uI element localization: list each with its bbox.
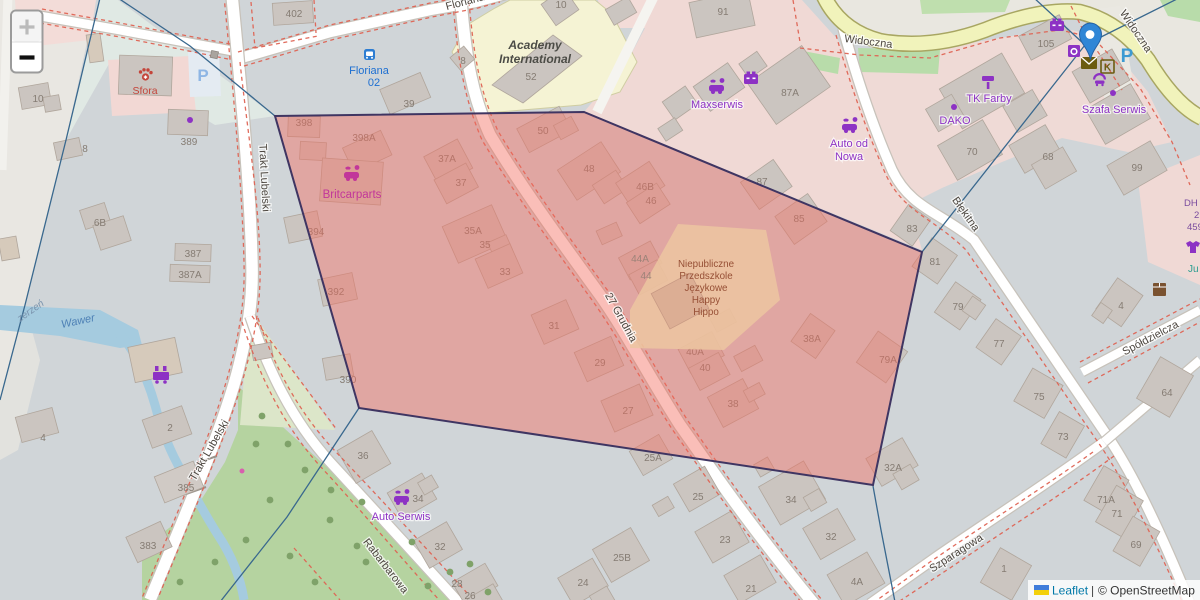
- svg-text:69: 69: [1130, 540, 1142, 551]
- svg-text:Auto Serwis: Auto Serwis: [372, 511, 431, 523]
- svg-text:Maxserwis: Maxserwis: [691, 99, 743, 111]
- svg-text:4: 4: [40, 433, 46, 444]
- svg-text:Floriana: Floriana: [349, 65, 390, 77]
- svg-text:DAKO: DAKO: [939, 115, 971, 127]
- svg-text:Leaflet: Leaflet: [1052, 584, 1089, 598]
- svg-text:34: 34: [412, 494, 424, 505]
- svg-text:P: P: [197, 66, 208, 85]
- svg-text:25: 25: [692, 492, 704, 503]
- svg-text:91: 91: [717, 7, 729, 18]
- svg-text:68: 68: [1042, 152, 1054, 163]
- svg-text:71A: 71A: [1097, 495, 1115, 506]
- svg-text:83: 83: [906, 224, 918, 235]
- svg-text:Academy: Academy: [507, 38, 563, 52]
- svg-text:387: 387: [185, 249, 202, 260]
- svg-text:389: 389: [181, 137, 198, 148]
- svg-text:Szafa Serwis: Szafa Serwis: [1082, 104, 1147, 116]
- svg-text:Sfora: Sfora: [132, 85, 157, 97]
- svg-text:Auto od: Auto od: [830, 138, 868, 150]
- svg-text:36: 36: [357, 451, 369, 462]
- svg-text:25A: 25A: [644, 453, 662, 464]
- svg-text:|: |: [1091, 584, 1094, 598]
- svg-text:Britcarparts: Britcarparts: [323, 189, 382, 201]
- svg-text:26: 26: [464, 591, 476, 600]
- svg-text:8: 8: [460, 56, 466, 67]
- svg-text:Hippo: Hippo: [693, 307, 719, 318]
- svg-text:10: 10: [32, 94, 44, 105]
- svg-text:DH: DH: [1184, 198, 1198, 209]
- svg-text:81: 81: [929, 257, 941, 268]
- svg-text:23: 23: [719, 535, 731, 546]
- svg-text:387A: 387A: [178, 270, 202, 281]
- svg-text:10: 10: [555, 0, 567, 11]
- svg-text:52: 52: [525, 72, 537, 83]
- svg-text:28: 28: [451, 579, 463, 590]
- svg-text:1: 1: [1001, 564, 1007, 575]
- svg-text:402: 402: [286, 9, 303, 20]
- svg-text:Przedszkole: Przedszkole: [679, 271, 733, 282]
- svg-text:4: 4: [1118, 301, 1124, 312]
- svg-text:Językowe: Językowe: [684, 283, 728, 294]
- svg-text:K: K: [1104, 63, 1112, 74]
- svg-text:459: 459: [1187, 222, 1200, 233]
- svg-text:25B: 25B: [613, 553, 631, 564]
- svg-text:Niepubliczne: Niepubliczne: [678, 259, 735, 270]
- svg-text:79: 79: [952, 302, 964, 313]
- svg-text:32: 32: [825, 532, 837, 543]
- svg-text:Nowa: Nowa: [835, 151, 864, 163]
- svg-text:8: 8: [82, 144, 88, 155]
- svg-text:99: 99: [1131, 163, 1143, 174]
- svg-text:32: 32: [434, 542, 446, 553]
- svg-text:32A: 32A: [884, 463, 902, 474]
- svg-text:Ju: Ju: [1188, 264, 1199, 275]
- svg-text:77: 77: [993, 339, 1005, 350]
- svg-text:International: International: [499, 52, 572, 66]
- svg-text:34: 34: [785, 495, 797, 506]
- svg-text:Happy: Happy: [692, 295, 720, 306]
- svg-text:385: 385: [178, 483, 195, 494]
- svg-text:70: 70: [966, 147, 978, 158]
- svg-text:73: 73: [1057, 432, 1069, 443]
- svg-text:6B: 6B: [94, 218, 107, 229]
- svg-text:39: 39: [403, 99, 415, 110]
- svg-text:64: 64: [1161, 388, 1173, 399]
- svg-text:© OpenStreetMap: © OpenStreetMap: [1098, 584, 1195, 598]
- svg-text:87A: 87A: [781, 88, 799, 99]
- svg-text:75: 75: [1033, 392, 1045, 403]
- svg-text:02: 02: [368, 77, 380, 89]
- svg-text:383: 383: [140, 541, 157, 552]
- svg-text:21: 21: [745, 584, 757, 595]
- svg-text:2: 2: [167, 423, 173, 434]
- svg-text:105: 105: [1038, 39, 1055, 50]
- svg-text:44A: 44A: [631, 254, 649, 265]
- svg-text:P: P: [1121, 46, 1134, 67]
- svg-text:4A: 4A: [851, 577, 864, 588]
- svg-text:24: 24: [577, 578, 589, 589]
- svg-text:2: 2: [1194, 210, 1199, 221]
- svg-text:44: 44: [640, 271, 652, 282]
- svg-text:71: 71: [1111, 509, 1123, 520]
- svg-text:TK Farby: TK Farby: [966, 93, 1012, 105]
